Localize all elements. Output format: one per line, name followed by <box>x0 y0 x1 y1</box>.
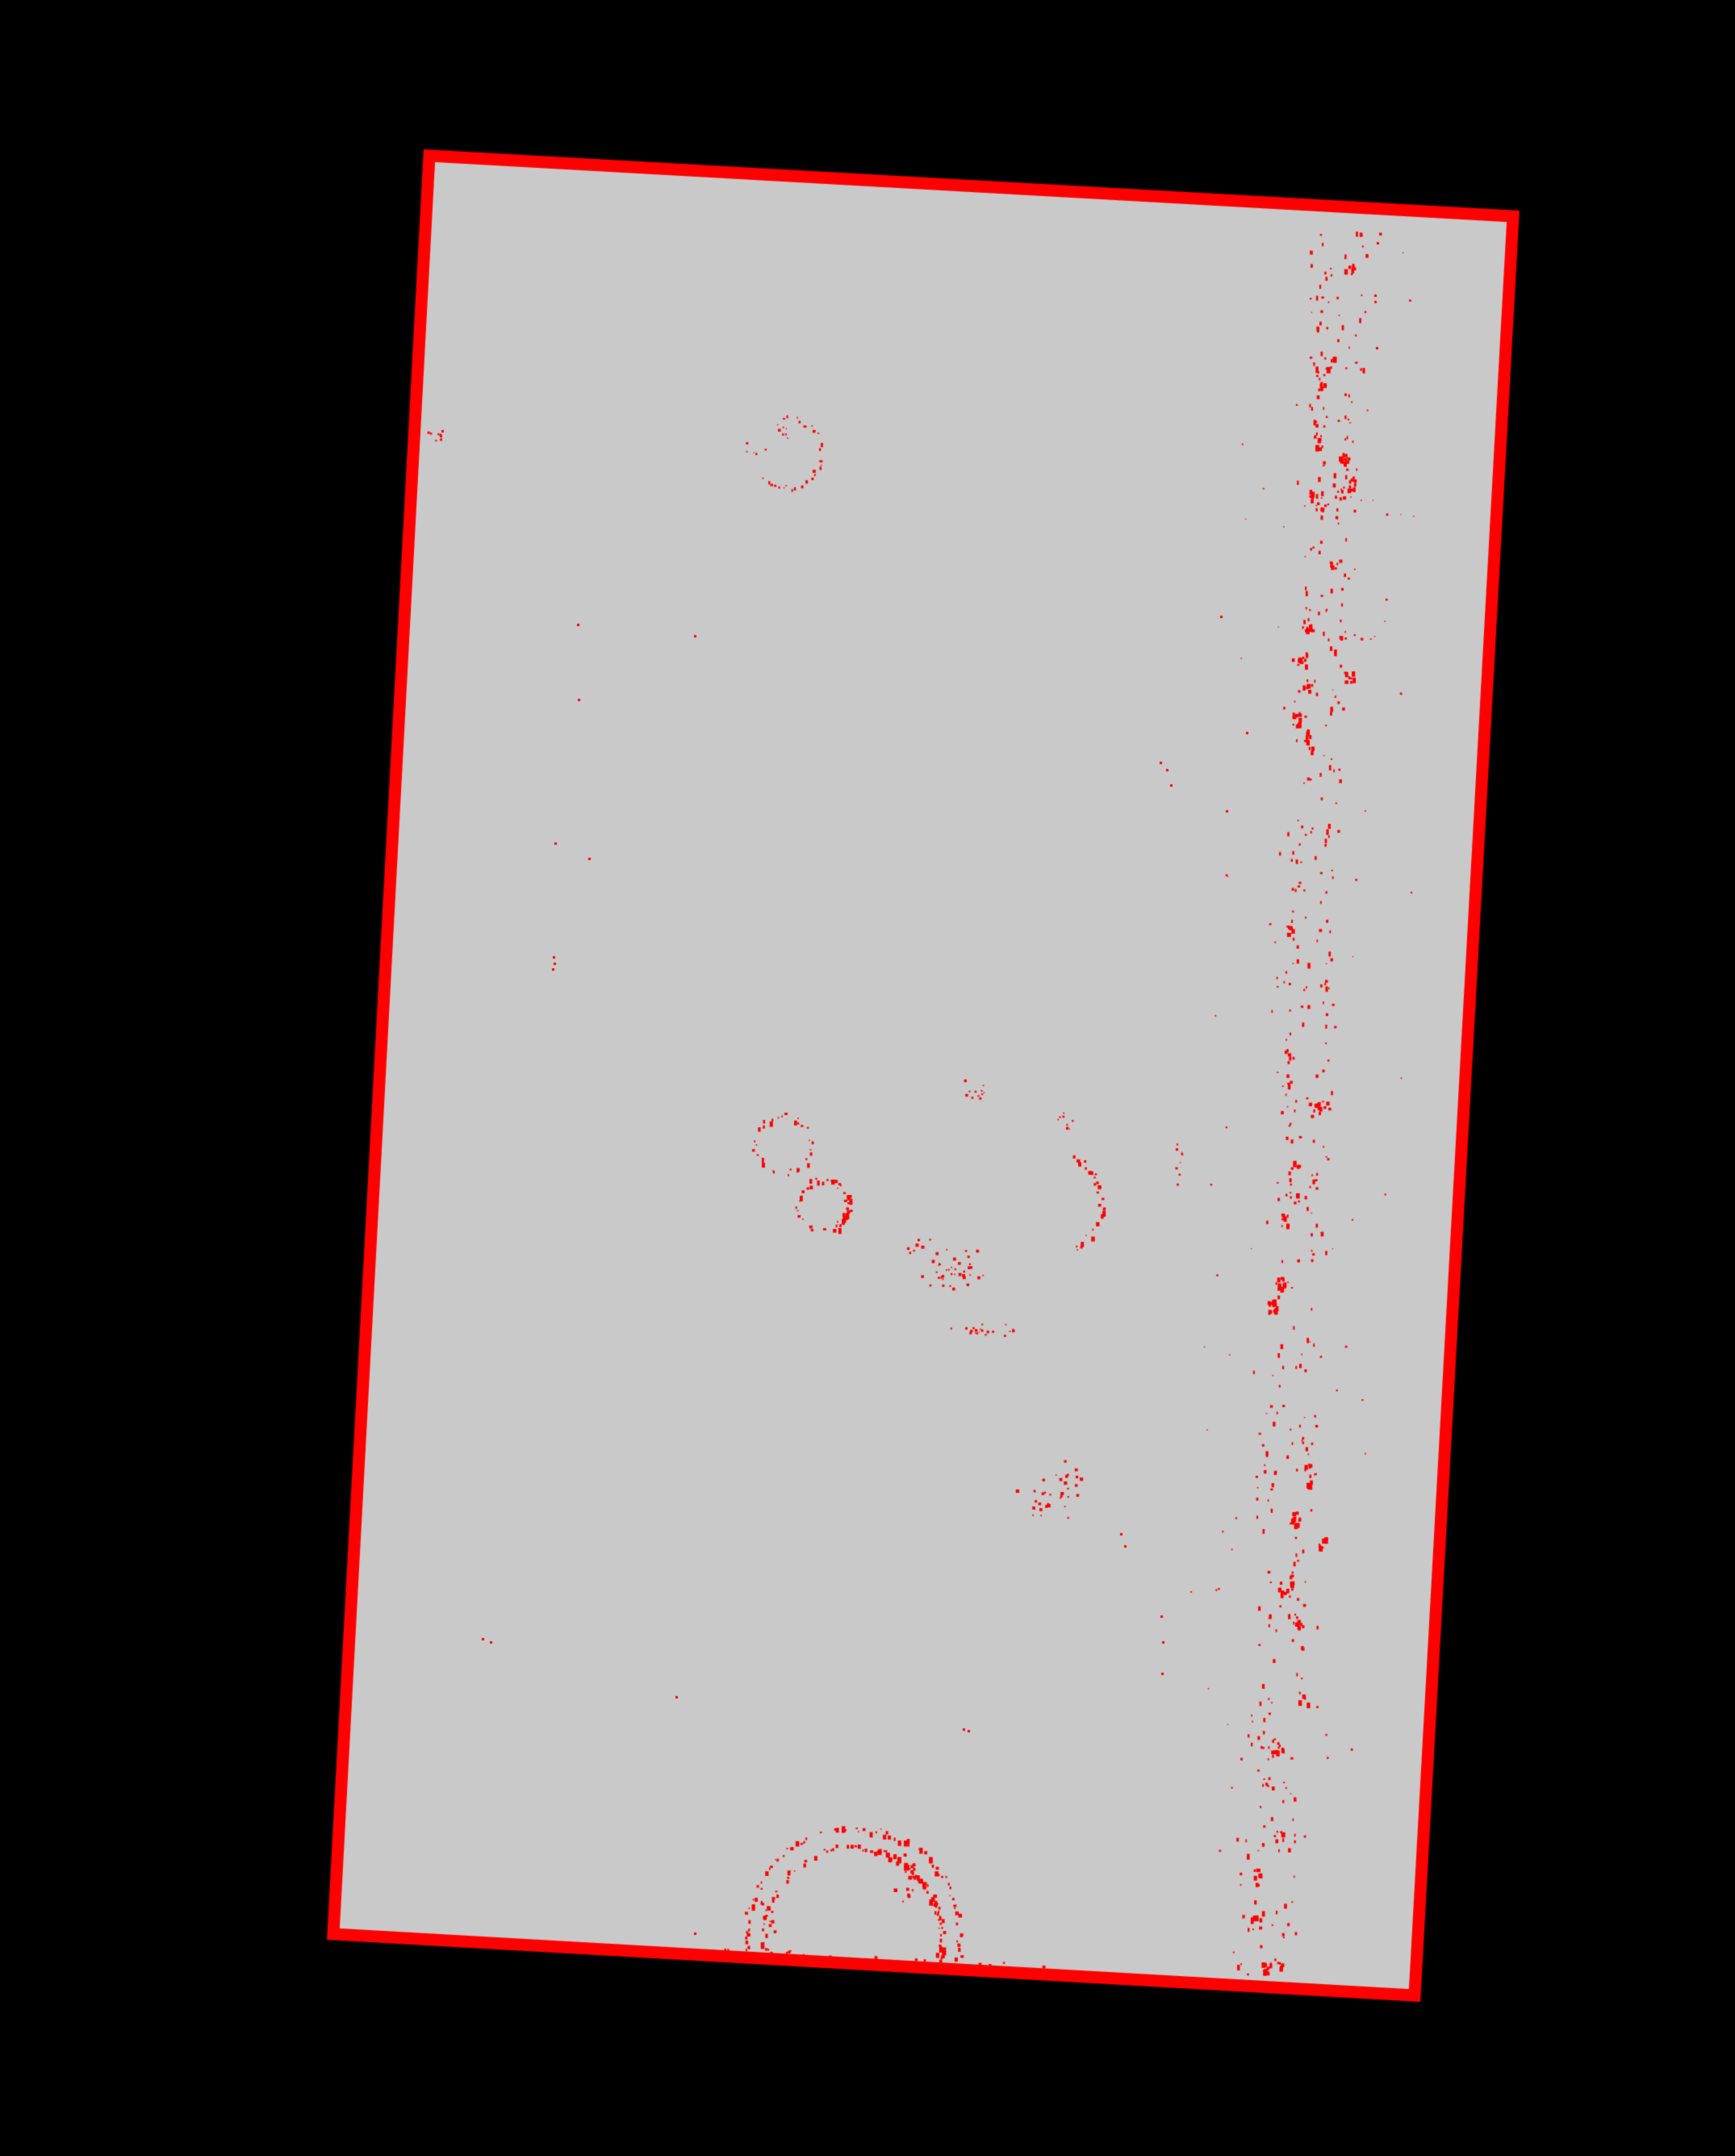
visualization-root <box>0 0 1735 2156</box>
difference-mask-canvas <box>0 0 1735 2156</box>
